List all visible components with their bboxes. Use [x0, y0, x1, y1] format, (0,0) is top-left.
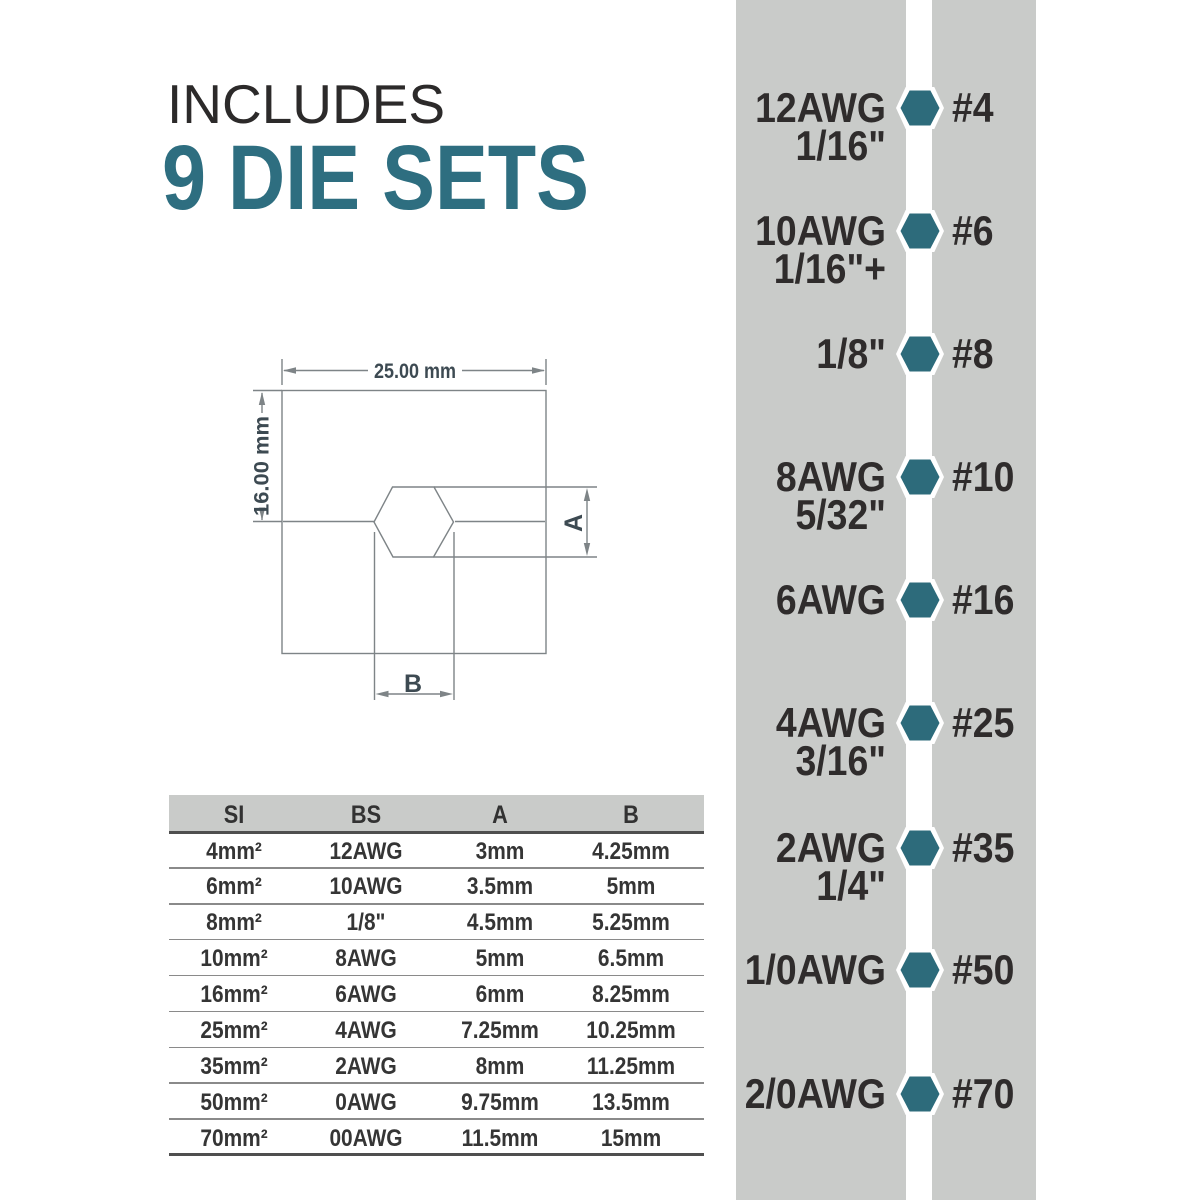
svg-text:16.00 mm: 16.00 mm: [251, 416, 274, 516]
svg-text:25.00 mm: 25.00 mm: [374, 360, 456, 383]
svg-text:A: A: [560, 514, 588, 532]
svg-text:B: B: [404, 670, 422, 698]
